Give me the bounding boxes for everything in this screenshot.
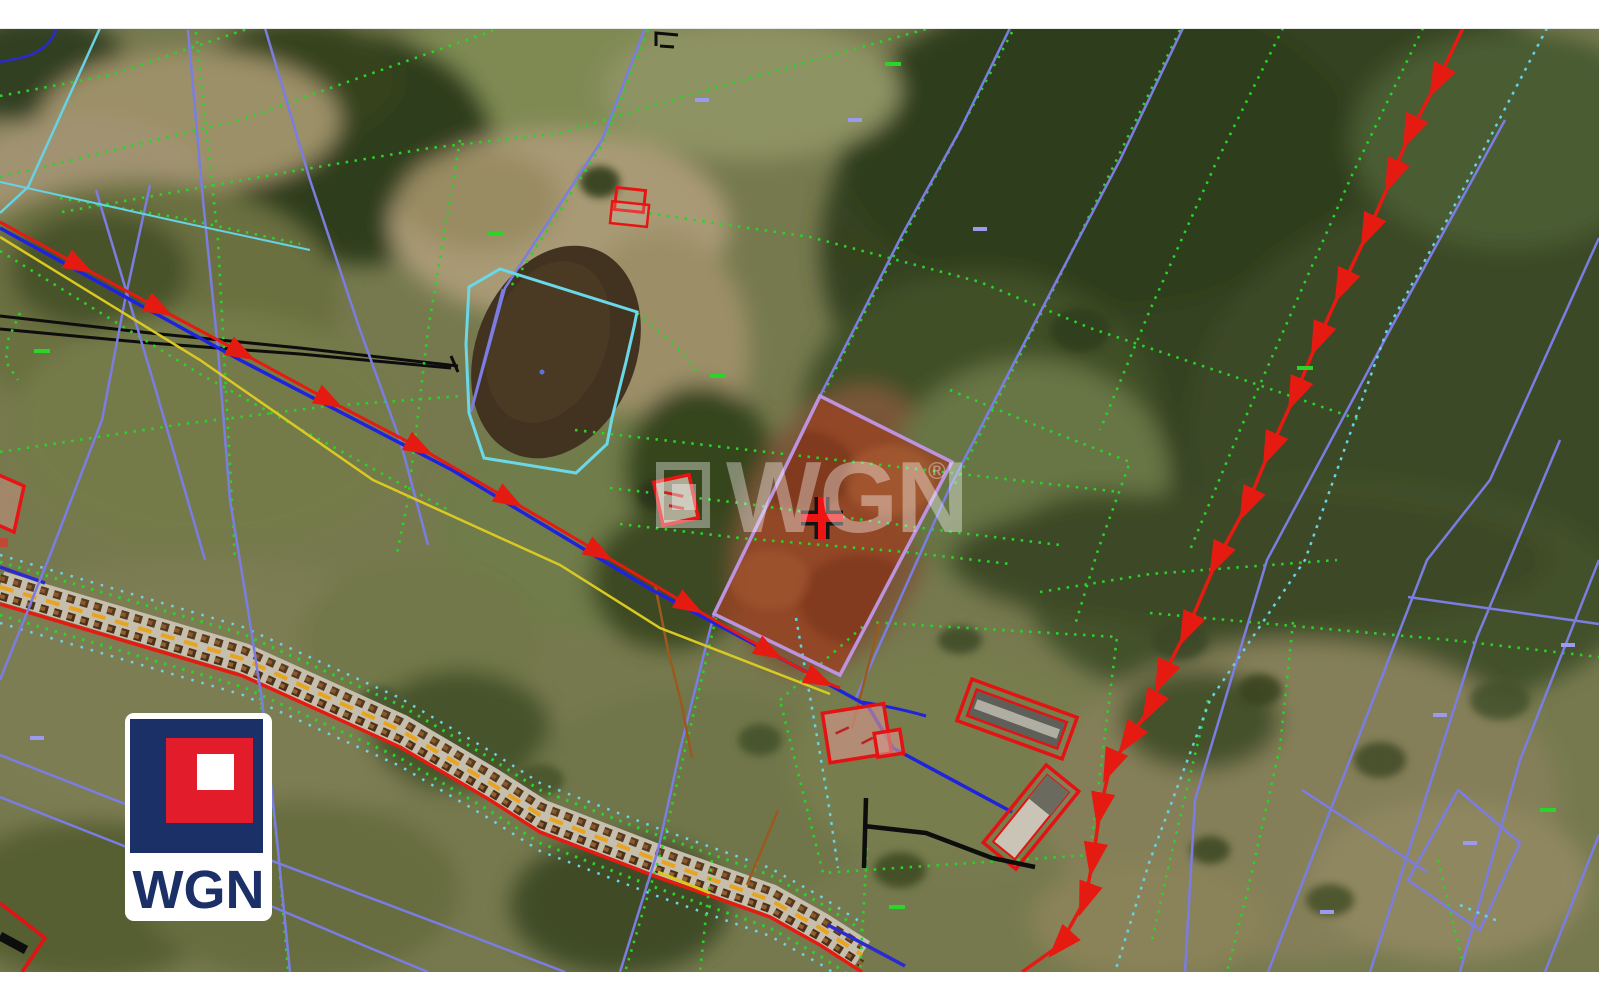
top-white-bar	[0, 0, 1599, 29]
logo-navy-square	[130, 719, 263, 853]
agency-logo: WGN	[125, 713, 272, 921]
bottom-white-bar	[0, 972, 1599, 999]
logo-white-square	[197, 754, 234, 790]
watermark-logo-icon	[656, 462, 710, 528]
logo-red-square	[166, 738, 253, 823]
registered-trademark-mark: ®	[928, 458, 946, 486]
logo-text: WGN	[125, 859, 272, 921]
screenshot: WGN ® WGN	[0, 0, 1599, 999]
